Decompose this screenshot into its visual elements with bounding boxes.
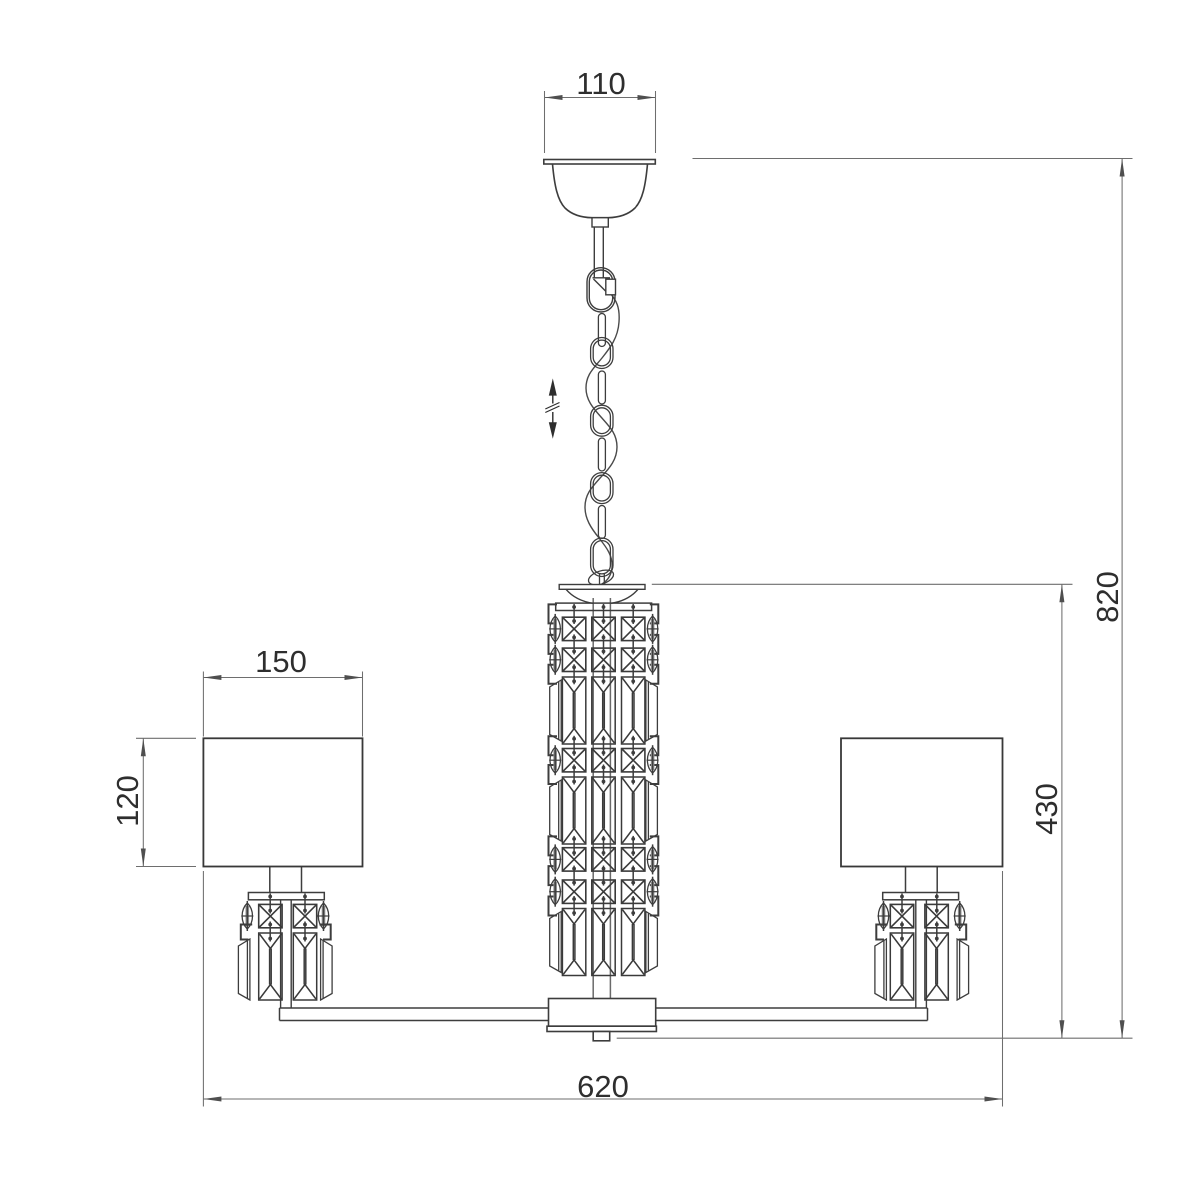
svg-text:120: 120 <box>110 775 145 827</box>
svg-text:820: 820 <box>1090 571 1125 623</box>
svg-text:620: 620 <box>577 1069 629 1104</box>
svg-text:430: 430 <box>1029 783 1064 835</box>
svg-text:150: 150 <box>255 644 307 679</box>
svg-text:110: 110 <box>576 66 625 101</box>
